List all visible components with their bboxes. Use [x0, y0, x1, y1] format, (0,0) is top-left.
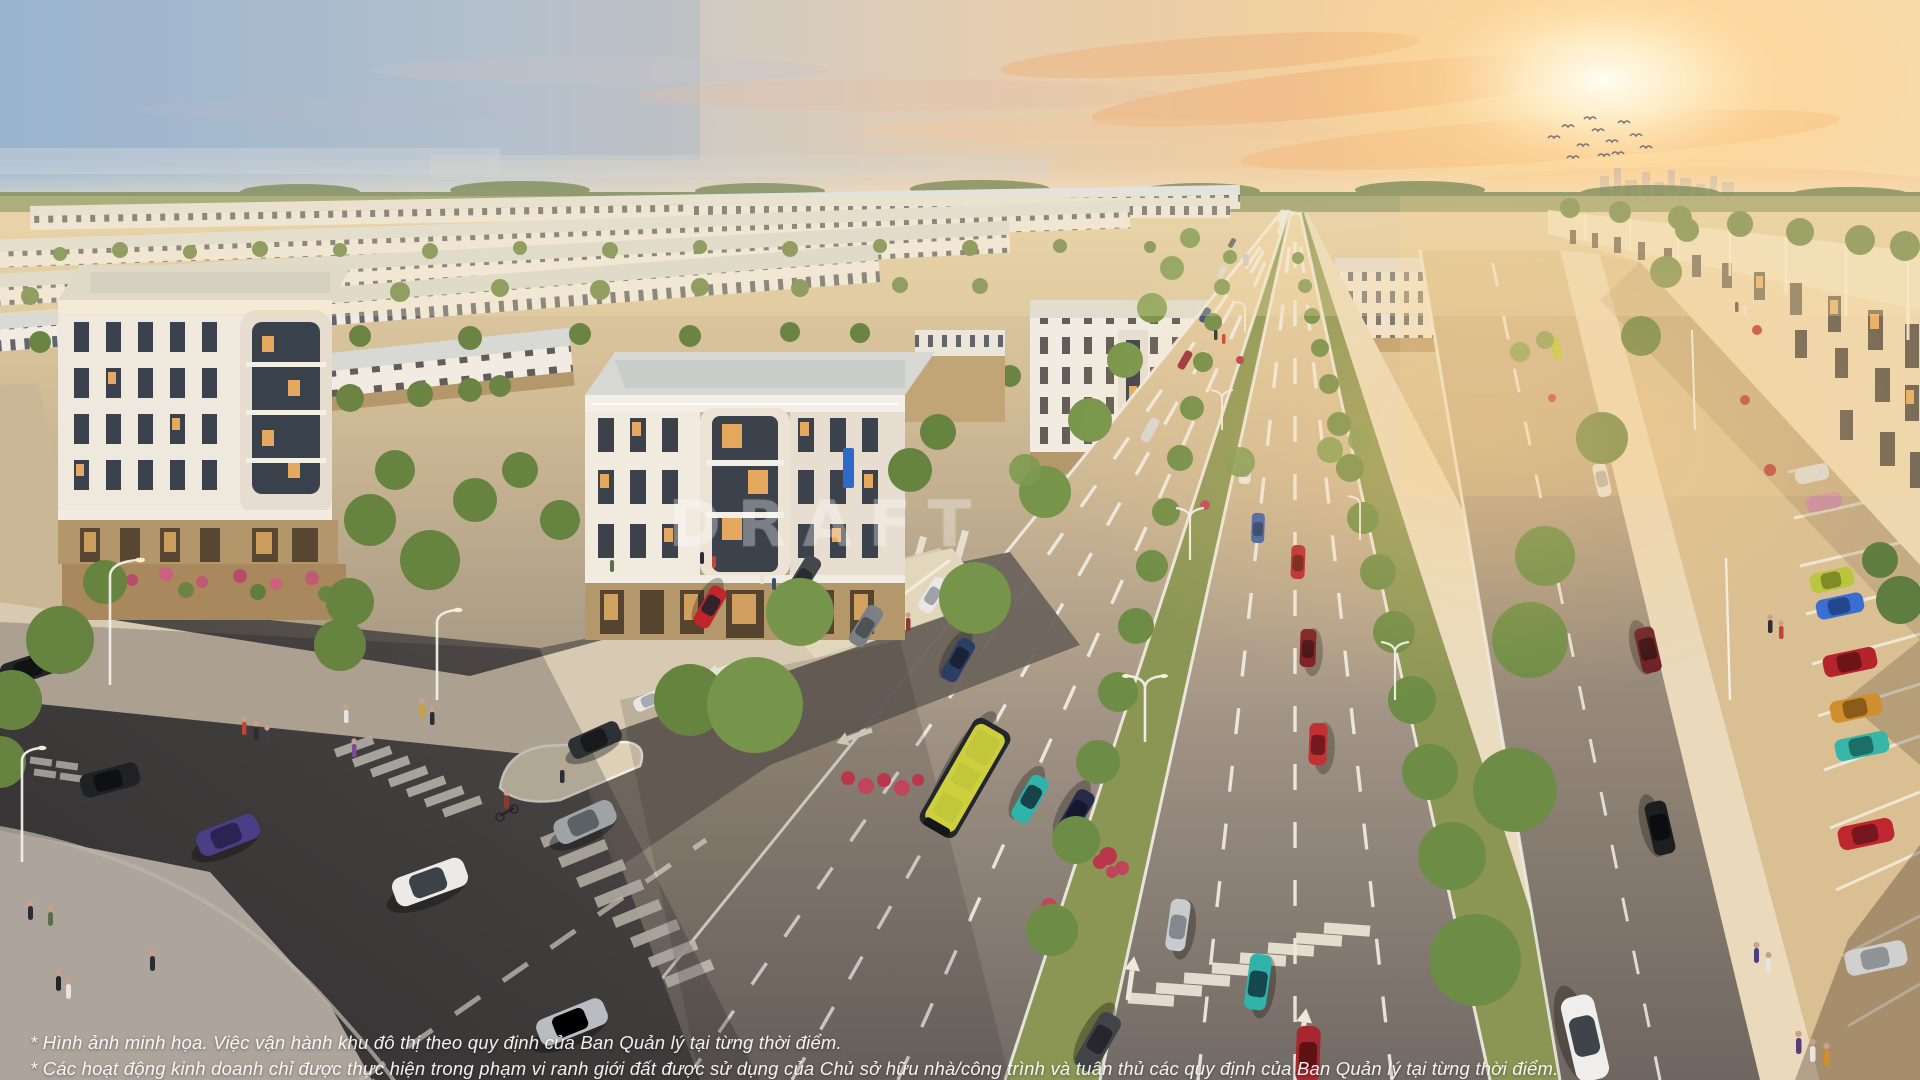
car [1290, 545, 1305, 579]
aerial-render: DRAFT * Hình ảnh minh họa. Việc vận hành… [0, 0, 1920, 1080]
shop-sign [843, 448, 854, 488]
draft-watermark: DRAFT [668, 488, 987, 562]
car [1251, 513, 1265, 543]
disclaimer-line-2: * Các hoạt động kinh doanh chỉ được thực… [30, 1056, 1558, 1080]
disclaimer-line-1: * Hình ảnh minh họa. Việc vận hành khu đ… [30, 1030, 1558, 1056]
disclaimer-text: * Hình ảnh minh họa. Việc vận hành khu đ… [30, 1030, 1558, 1080]
